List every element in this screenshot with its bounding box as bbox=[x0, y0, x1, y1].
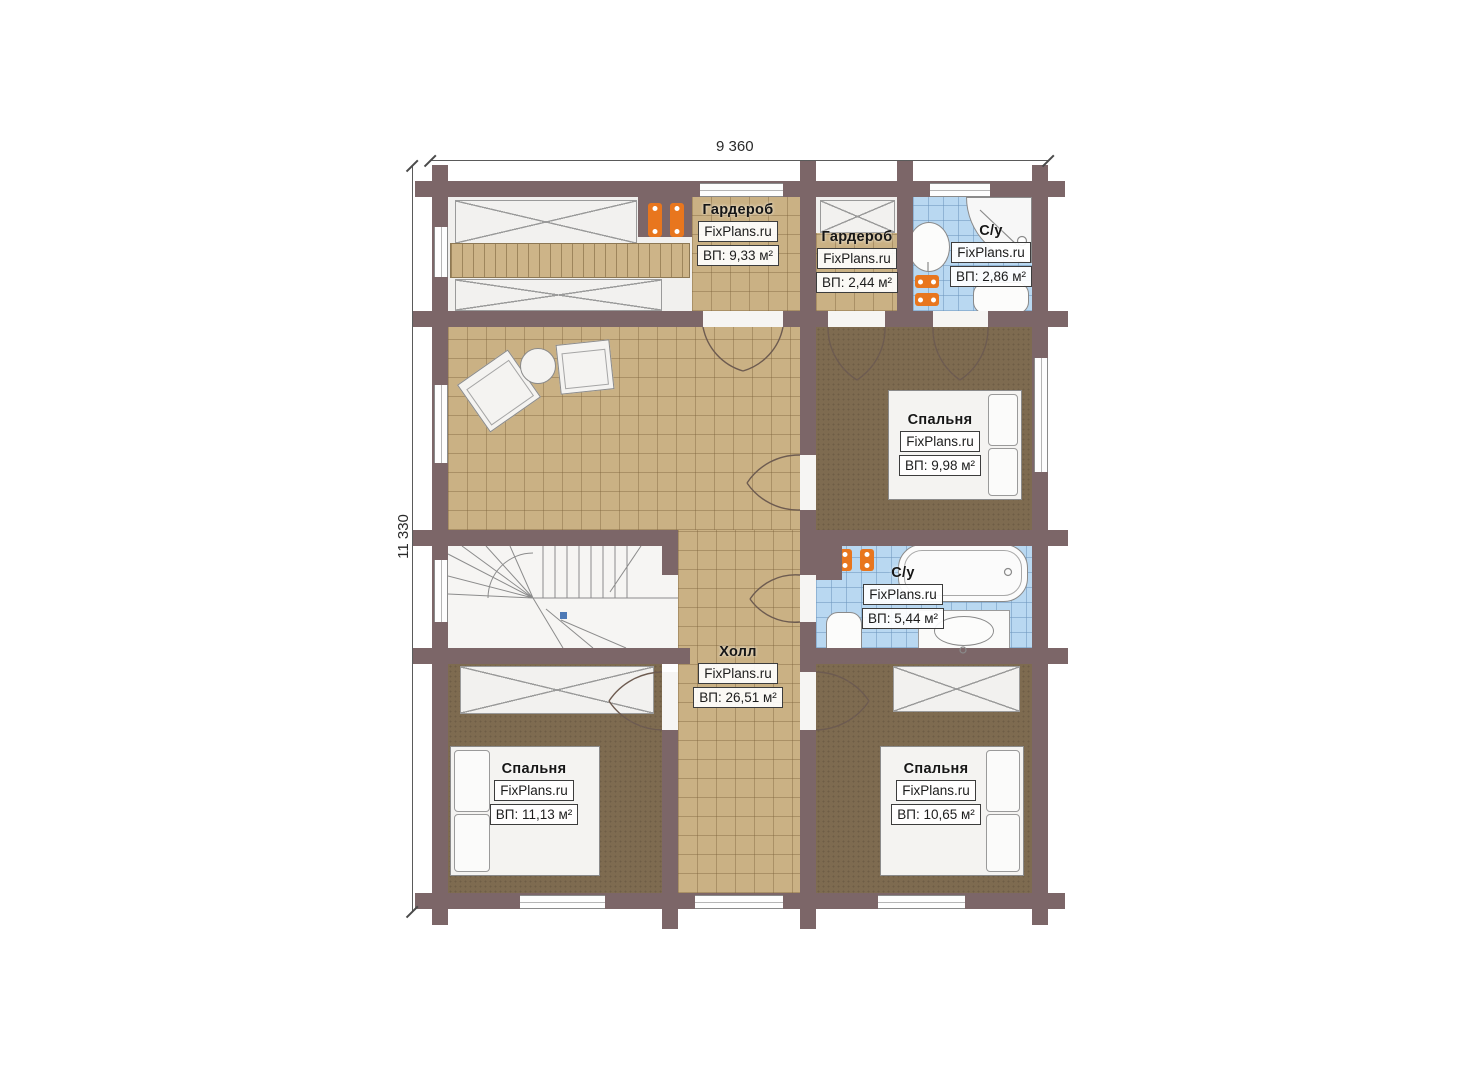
window bbox=[434, 560, 448, 622]
window bbox=[520, 895, 605, 909]
radiator-icon bbox=[648, 203, 662, 237]
room-area: ВП: 2,44 м² bbox=[816, 272, 898, 293]
log-end bbox=[800, 161, 816, 181]
door-threshold bbox=[828, 311, 885, 327]
duct-niche bbox=[816, 546, 842, 580]
wall bbox=[448, 311, 703, 327]
room-brand: FixPlans.ru bbox=[863, 584, 943, 605]
round-table bbox=[520, 348, 556, 384]
window bbox=[930, 183, 990, 197]
room-brand: FixPlans.ru bbox=[896, 780, 976, 801]
room-area: ВП: 9,33 м² bbox=[697, 245, 779, 266]
room-label-hall: Холл FixPlans.ru ВП: 26,51 м² bbox=[684, 645, 792, 708]
door-threshold bbox=[800, 672, 816, 730]
room-brand: FixPlans.ru bbox=[900, 431, 980, 452]
room-area: ВП: 11,13 м² bbox=[490, 804, 579, 825]
window bbox=[878, 895, 965, 909]
room-area: ВП: 5,44 м² bbox=[862, 608, 944, 629]
room-title: Спальня bbox=[880, 762, 992, 777]
room-label-wardrobe2: Гардероб FixPlans.ru ВП: 2,44 м² bbox=[805, 230, 909, 293]
log-end bbox=[800, 909, 816, 929]
wall bbox=[885, 311, 933, 327]
room-title: С/у bbox=[936, 224, 1046, 239]
room-title: Гардероб bbox=[675, 203, 801, 218]
room-title: Спальня bbox=[884, 413, 996, 428]
log-end bbox=[662, 909, 678, 929]
wall bbox=[800, 530, 1032, 546]
staircase bbox=[448, 546, 678, 648]
floor-plan-canvas: Гардероб FixPlans.ru ВП: 9,33 м² Гардеро… bbox=[0, 0, 1474, 1080]
wall bbox=[662, 530, 678, 575]
dimension-height-label: 11 330 bbox=[395, 510, 412, 563]
room-brand: FixPlans.ru bbox=[494, 780, 574, 801]
wall bbox=[432, 165, 448, 925]
wall bbox=[662, 730, 678, 893]
wall bbox=[800, 648, 1032, 664]
log-end bbox=[412, 311, 432, 327]
window bbox=[1034, 358, 1048, 472]
dimension-line-top bbox=[430, 160, 1048, 161]
window bbox=[434, 227, 448, 277]
window bbox=[695, 895, 783, 909]
dimension-line-left bbox=[412, 166, 413, 912]
room-label-bedroom2: Спальня FixPlans.ru ВП: 11,13 м² bbox=[477, 762, 591, 825]
room-title: Гардероб bbox=[805, 230, 909, 245]
room-area: ВП: 9,98 м² bbox=[899, 455, 981, 476]
room-label-bedroom1: Спальня FixPlans.ru ВП: 9,98 м² bbox=[884, 413, 996, 476]
wall bbox=[448, 530, 662, 546]
room-brand: FixPlans.ru bbox=[698, 663, 778, 684]
door-threshold bbox=[662, 672, 678, 730]
room-area: ВП: 2,86 м² bbox=[950, 266, 1032, 287]
wall bbox=[783, 311, 828, 327]
log-end bbox=[412, 648, 432, 664]
room-brand: FixPlans.ru bbox=[951, 242, 1031, 263]
door-threshold bbox=[800, 575, 816, 622]
room-title: С/у bbox=[848, 566, 958, 581]
room-label-bathroom2: С/у FixPlans.ru ВП: 5,44 м² bbox=[848, 566, 958, 629]
wardrobe1-shelf-top bbox=[455, 200, 637, 244]
toilet-icon bbox=[973, 282, 1029, 314]
wardrobe1-shelf-bottom bbox=[455, 279, 662, 311]
room-title: Холл bbox=[684, 645, 792, 660]
bedroom3-shelf bbox=[893, 666, 1020, 712]
wall bbox=[448, 648, 690, 664]
wall bbox=[800, 510, 816, 575]
room-title: Спальня bbox=[477, 762, 591, 777]
log-end bbox=[412, 530, 432, 546]
wall bbox=[800, 622, 816, 672]
stair-direction-marker bbox=[560, 612, 567, 619]
log-end bbox=[1048, 648, 1068, 664]
door-threshold bbox=[933, 311, 988, 327]
wall bbox=[800, 327, 816, 455]
room-label-bathroom1: С/у FixPlans.ru ВП: 2,86 м² bbox=[936, 224, 1046, 287]
wall bbox=[800, 730, 816, 893]
wall bbox=[988, 311, 1032, 327]
room-area: ВП: 10,65 м² bbox=[891, 804, 981, 825]
wardrobe1-hanging-rail bbox=[450, 243, 690, 278]
room-brand: FixPlans.ru bbox=[817, 248, 897, 269]
log-end bbox=[1048, 311, 1068, 327]
log-end bbox=[897, 161, 913, 181]
dimension-width-label: 9 360 bbox=[712, 138, 758, 155]
window bbox=[434, 385, 448, 463]
room-label-bedroom3: Спальня FixPlans.ru ВП: 10,65 м² bbox=[880, 762, 992, 825]
room-area: ВП: 26,51 м² bbox=[693, 687, 783, 708]
bedroom2-shelf bbox=[460, 666, 654, 714]
room-label-wardrobe1: Гардероб FixPlans.ru ВП: 9,33 м² bbox=[675, 203, 801, 266]
door-threshold bbox=[800, 455, 816, 510]
door-threshold bbox=[703, 311, 783, 327]
room-brand: FixPlans.ru bbox=[698, 221, 778, 242]
armchair bbox=[556, 339, 615, 394]
hall-corridor-floor bbox=[678, 530, 800, 893]
log-end bbox=[1048, 530, 1068, 546]
radiator-icon bbox=[915, 293, 939, 306]
window bbox=[700, 183, 783, 197]
